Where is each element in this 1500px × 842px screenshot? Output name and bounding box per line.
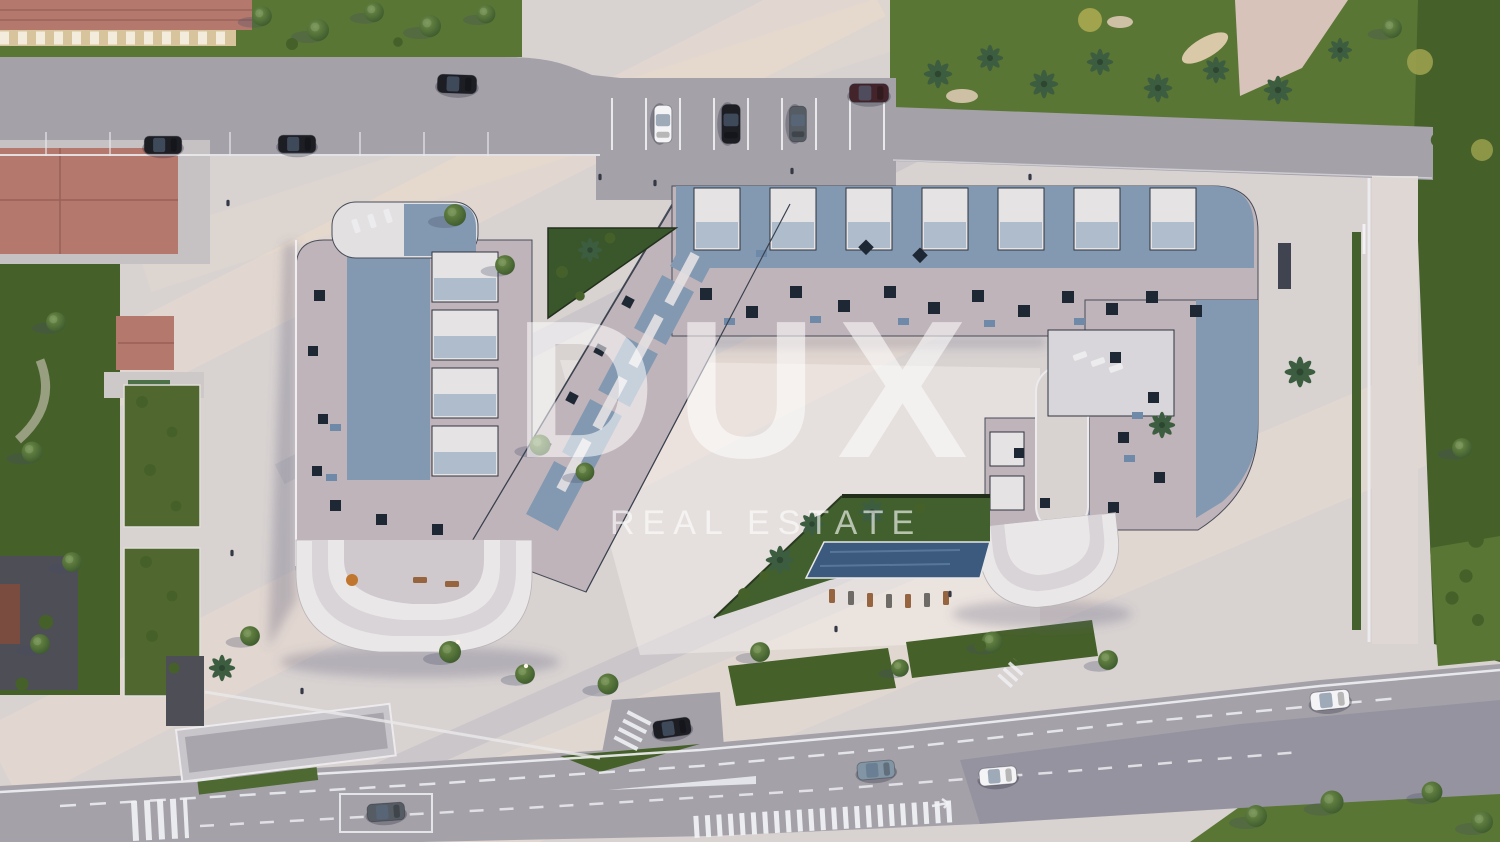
top-right-park	[890, 0, 1440, 128]
rooftop-corner-terrace	[1048, 330, 1174, 416]
car-parallel-1	[142, 136, 184, 158]
car-bay-gray	[785, 104, 806, 144]
car-bay-black	[717, 102, 740, 146]
site-render-svg	[0, 0, 1500, 842]
swimming-pool	[806, 542, 990, 578]
left-wing-end-terraces	[296, 540, 532, 652]
bench	[1278, 243, 1291, 289]
car-parallel-2	[276, 135, 318, 157]
car-bay-white	[650, 103, 672, 145]
car-top-corner	[847, 84, 891, 107]
right-hedge-row	[1352, 232, 1361, 630]
neighbor-roof-top	[0, 0, 252, 46]
neighbor-house-large	[0, 148, 178, 254]
neighbor-deck	[0, 584, 20, 644]
terrace-table	[346, 574, 358, 586]
screenshot-root: DUX REAL ESTATE	[0, 0, 1500, 842]
